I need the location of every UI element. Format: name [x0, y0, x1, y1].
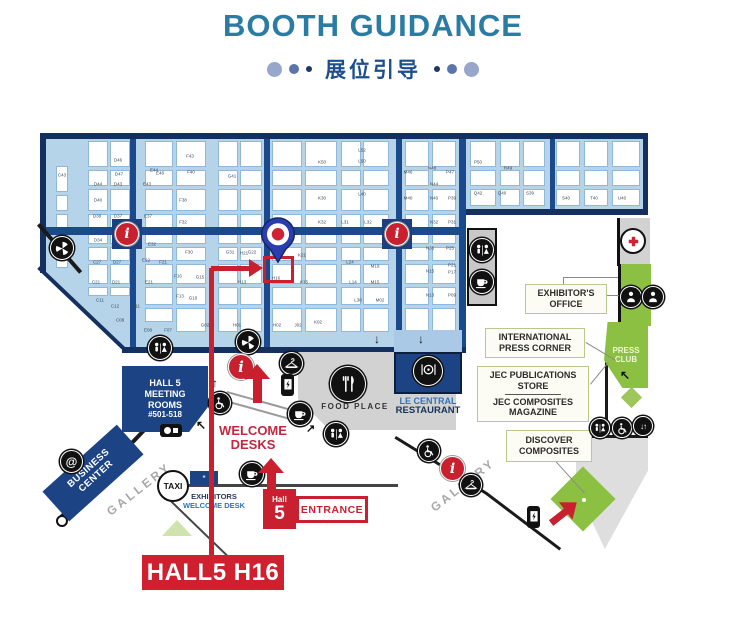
- booth-label: L52: [358, 148, 366, 153]
- food-icon: [330, 366, 366, 402]
- booth-cell: [305, 247, 337, 261]
- phone-charging-icon: [281, 374, 294, 396]
- booth-label: K30: [318, 196, 326, 201]
- booth-label: L24: [346, 260, 354, 265]
- booth-cell: [272, 287, 302, 305]
- booth-cell: [110, 141, 130, 167]
- booth-label: M15: [371, 280, 380, 285]
- booth-label: C27: [93, 260, 101, 265]
- red-arrow-up: [244, 364, 270, 403]
- booth-label: G10: [189, 296, 198, 301]
- callout-line: DISCOVER: [511, 435, 587, 446]
- callout-divider: [505, 394, 561, 395]
- booth-label: E32: [148, 242, 156, 247]
- booth-label: D43: [114, 182, 122, 187]
- callout-line: COMPOSITES: [511, 446, 587, 457]
- booth-label: P17: [448, 270, 456, 275]
- info-icon: i: [440, 456, 465, 481]
- booth-cell: [405, 264, 429, 284]
- booth-cell: [584, 170, 608, 186]
- booth-label: U40: [618, 196, 626, 201]
- meeting-rooms-line: MEETING: [144, 389, 185, 400]
- wheelchair-icon: [612, 418, 632, 438]
- entrance-hall-badge: Hall 5: [263, 489, 296, 529]
- welcome-desks-line2: DESKS: [205, 438, 301, 452]
- booth-cell: [88, 141, 108, 167]
- booth-label: F38: [179, 198, 187, 203]
- booth-cell: [110, 287, 130, 296]
- callout-jec-publications: JEC PUBLICATIONS STORE JEC COMPOSITES MA…: [477, 366, 589, 422]
- arrow-up-left-icon: ↖: [620, 368, 630, 382]
- target-booth-label-box: HALL5 H16: [142, 555, 284, 590]
- booth-label: C21: [92, 280, 100, 285]
- booth-label: P09: [448, 293, 456, 298]
- booth-label: F32: [179, 220, 187, 225]
- booth-label: H01: [233, 323, 241, 328]
- booth-label: C11: [96, 298, 104, 303]
- booth-label: M02: [376, 298, 385, 303]
- booth-label: P50: [474, 160, 482, 165]
- green-hill-shape: [162, 520, 192, 536]
- diamond-dot: [582, 498, 586, 502]
- booth-label: D46: [114, 158, 122, 163]
- booth-label: N48: [428, 166, 436, 171]
- booth-cell: [272, 170, 302, 186]
- booth-cell: [56, 166, 68, 192]
- hall-left-border: [40, 133, 46, 273]
- booth-cell: [305, 170, 337, 186]
- booth-cell: [218, 141, 238, 167]
- business-center-zone: BUSINESS CENTER: [42, 425, 143, 522]
- booth-label: E48: [156, 171, 164, 176]
- callout-line: JEC COMPOSITES: [482, 397, 584, 408]
- booth-cell: [218, 308, 238, 332]
- wheelchair-icon: [418, 440, 440, 462]
- booth-label: D27: [113, 260, 121, 265]
- booth-cell: [240, 141, 262, 167]
- restaurant-label: LE CENTRAL RESTAURANT: [388, 396, 468, 417]
- floor-map: C43D46D47D44D43E44E43E48F43F40G41D40D38D…: [0, 0, 746, 618]
- arrow-down-icon: ↓: [374, 332, 380, 346]
- restroom-icon: [324, 422, 348, 446]
- booth-label: G41: [228, 174, 237, 179]
- booth-cell: [500, 170, 520, 186]
- restaurant-plate-icon: [413, 356, 443, 386]
- booth-label: F21: [159, 260, 167, 265]
- booth-label: L14: [349, 280, 357, 285]
- booth-label: Q40: [498, 191, 507, 196]
- aisle-vertical-4: [459, 139, 466, 353]
- booth-label: D47: [115, 172, 123, 177]
- arrow-up-right-icon: ↗: [306, 422, 315, 435]
- booth-label: C08: [116, 318, 124, 323]
- booth-cell: [612, 170, 640, 186]
- booth-label: M40: [404, 196, 413, 201]
- booth-cell: [240, 189, 262, 211]
- booth-label: C43: [58, 173, 66, 178]
- callout-line: PRESS CORNER: [490, 343, 580, 354]
- booth-cell: [145, 308, 173, 322]
- exhibitors-desk-line1: EXHIBITORS: [178, 492, 250, 501]
- booth-label: E21: [145, 280, 153, 285]
- booth-label: F13: [176, 294, 184, 299]
- booth-label: P25: [446, 246, 454, 251]
- star-icon: *: [202, 474, 205, 483]
- booth-cell: [341, 308, 361, 332]
- meeting-rooms-line: ROOMS: [148, 400, 182, 411]
- booth-label: K50: [318, 160, 326, 165]
- booth-label: E43: [143, 182, 151, 187]
- person-icon: [620, 286, 642, 308]
- fan-icon: [236, 330, 260, 354]
- entrance-label: ENTRANCE: [301, 504, 363, 516]
- booth-label: G22: [248, 250, 257, 255]
- booth-label: J02: [294, 323, 301, 328]
- meeting-rooms-line: HALL 5: [149, 378, 180, 389]
- booth-label: L40: [358, 192, 366, 197]
- booth-cell: [432, 141, 456, 167]
- callout-international-press: INTERNATIONAL PRESS CORNER: [485, 328, 585, 358]
- booth-cell: [240, 170, 262, 186]
- elevator-icon: ↓↑: [633, 416, 653, 436]
- projector-icon: [160, 424, 182, 437]
- restaurant-forecourt: [394, 330, 462, 352]
- booth-cell: [272, 189, 302, 211]
- booth-cell: [584, 141, 608, 167]
- booth-label: N32: [430, 220, 438, 225]
- person-icon: [642, 286, 664, 308]
- restroom-icon: [590, 418, 610, 438]
- coat-check-icon: [280, 352, 303, 375]
- entrance-hall-number: 5: [274, 504, 285, 523]
- booth-label: L38: [354, 298, 362, 303]
- booth-label: G15: [196, 275, 205, 280]
- booth-label: D38: [93, 214, 101, 219]
- arrow-up-left-icon: ↖: [196, 418, 206, 432]
- booth-label: D34: [94, 238, 102, 243]
- booth-label: S40: [562, 196, 570, 201]
- booth-cell: [272, 308, 302, 332]
- booth-cell: [363, 247, 389, 261]
- route-line-horizontal: [211, 266, 249, 271]
- booth-cell: [363, 141, 389, 167]
- booth-label: L31: [341, 220, 349, 225]
- callout-line: OFFICE: [530, 299, 602, 310]
- booth-label: P21: [448, 263, 456, 268]
- aisle-vertical-right-wing: [550, 139, 555, 211]
- booth-label: D44: [94, 182, 102, 187]
- welcome-desks-label: WELCOME DESKS: [205, 424, 301, 453]
- meeting-rooms-line: #501-518: [148, 410, 182, 420]
- leader-line: [563, 277, 618, 278]
- booth-label: N35: [426, 246, 434, 251]
- booth-cell: [88, 287, 108, 296]
- booth-label: C12: [111, 304, 119, 309]
- booth-label: S39: [526, 191, 534, 196]
- booth-cell: [240, 308, 262, 332]
- booth-label: K21: [298, 253, 306, 258]
- booth-cell: [305, 287, 337, 305]
- booth-label: D37: [114, 214, 122, 219]
- booth-label: L50: [358, 159, 366, 164]
- booth-cell: [305, 264, 337, 284]
- booth-label: F43: [186, 154, 194, 159]
- booth-label: T40: [590, 196, 598, 201]
- callout-line: JEC PUBLICATIONS: [482, 370, 584, 381]
- first-aid-icon: [620, 228, 646, 254]
- booth-cell: [500, 141, 520, 167]
- red-arrow-up: [258, 458, 284, 491]
- booth-cell: [145, 287, 173, 305]
- entrance-label-box: ENTRANCE: [296, 496, 368, 523]
- booth-label: R49: [504, 166, 512, 171]
- booth-cell: [556, 170, 580, 186]
- fan-icon: [50, 236, 74, 260]
- info-icon: i: [385, 222, 409, 246]
- booth-label: E37: [144, 214, 152, 219]
- restroom-icon: [470, 238, 494, 262]
- exhibitors-desk-label: EXHIBITORS WELCOME DESK: [178, 492, 250, 510]
- booth-cell: [218, 189, 238, 211]
- booth-label: P39: [448, 196, 456, 201]
- callout-discover-composites: DISCOVER COMPOSITES: [506, 430, 592, 462]
- booth-label: G02: [201, 323, 210, 328]
- booth-cell: [432, 308, 456, 332]
- booth-label: L32: [364, 220, 372, 225]
- booth-cell: [341, 170, 361, 186]
- booth-cell: [176, 308, 206, 332]
- booth-cell: [110, 189, 130, 211]
- callout-line: INTERNATIONAL: [490, 332, 580, 343]
- location-pin-icon: [257, 216, 299, 264]
- restaurant-label-line2: RESTAURANT: [388, 406, 468, 417]
- taxi-badge: TAXI: [157, 470, 189, 502]
- booth-cell: [218, 287, 238, 305]
- booth-cell: [470, 170, 496, 186]
- booth-label: K32: [318, 220, 326, 225]
- booth-label: G31: [226, 250, 235, 255]
- booth-label: H13: [238, 280, 246, 285]
- booth-cell: [405, 308, 429, 332]
- booth-label: N15: [426, 269, 434, 274]
- callout-exhibitors-office: EXHIBITOR'S OFFICE: [525, 284, 607, 314]
- booth-cell: [612, 141, 640, 167]
- booth-label: F40: [187, 170, 195, 175]
- booth-label: P47: [446, 170, 454, 175]
- booth-label: D21: [112, 280, 120, 285]
- booth-cell: [363, 308, 389, 332]
- booth-label: K15: [300, 280, 308, 285]
- booth-cell: [523, 141, 545, 167]
- booth-cell: [56, 195, 68, 211]
- booth-label: H21: [240, 251, 248, 256]
- arrow-down-icon: ↓: [418, 332, 424, 346]
- taxi-label: TAXI: [164, 481, 183, 491]
- booth-cell: [272, 141, 302, 167]
- booth-label: F07: [164, 328, 172, 333]
- coat-check-icon: [460, 474, 482, 496]
- booth-cell: [240, 287, 262, 305]
- callout-line: EXHIBITOR'S: [530, 288, 602, 299]
- booth-cell: [145, 141, 173, 167]
- booth-cell: [145, 189, 173, 211]
- booth-cell: [556, 141, 580, 167]
- booth-label: P31: [448, 220, 456, 225]
- booth-label: K02: [314, 320, 322, 325]
- booth-cell: [405, 141, 429, 167]
- restroom-icon: [148, 336, 172, 360]
- press-club-label: CLUB: [615, 355, 637, 364]
- info-icon: i: [115, 222, 139, 246]
- booth-label: N44: [430, 182, 438, 187]
- booth-cell: [523, 170, 545, 186]
- right-wing-right-border: [643, 133, 648, 215]
- at-sign: @: [66, 455, 78, 469]
- booth-label: H02: [273, 323, 281, 328]
- booth-label: N13: [426, 293, 434, 298]
- exhibitors-desk-marker: *: [190, 471, 218, 485]
- callout-line: STORE: [482, 381, 584, 392]
- booth-label: M46: [404, 170, 413, 175]
- right-wing-bottom-border: [466, 209, 648, 215]
- booth-cell: [363, 170, 389, 186]
- booth-label: M19: [371, 264, 380, 269]
- elevator-arrows: ↓↑: [640, 422, 646, 431]
- press-club-label: PRESS: [612, 346, 639, 355]
- callout-line: MAGAZINE: [482, 407, 584, 418]
- welcome-desks-line1: WELCOME: [205, 424, 301, 438]
- target-booth-label: HALL5 H16: [147, 559, 280, 587]
- booth-label: F30: [185, 250, 193, 255]
- coffee-icon: [470, 270, 494, 294]
- green-diamond-small: [621, 387, 642, 408]
- booth-label: E22: [142, 258, 150, 263]
- exhibitors-desk-line2: WELCOME DESK: [178, 501, 250, 510]
- phone-charging-icon: [527, 506, 540, 528]
- at-sign-icon: @: [60, 450, 83, 473]
- booth-label: Q42: [474, 191, 483, 196]
- route-line-vertical: [209, 268, 214, 558]
- booth-label: N40: [430, 196, 438, 201]
- booth-cell: [363, 189, 389, 211]
- booth-label: F16: [174, 274, 182, 279]
- booth-label: B11: [132, 304, 140, 309]
- booth-label: D40: [94, 198, 102, 203]
- booth-guidance-screen: BOOTH GUIDANCE 展位引导 C43D46D47D44D43E44E4…: [0, 0, 746, 618]
- booth-label: E08: [144, 328, 152, 333]
